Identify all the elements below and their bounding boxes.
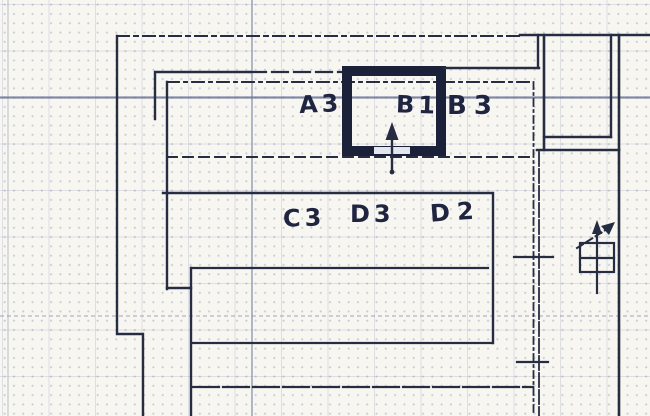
room-label-b1: B1 [396,92,440,117]
room-label-d2: D2 [429,198,481,225]
room-label-d3: D3 [350,202,395,226]
room-label-a3: A3 [298,91,342,117]
room-label-b3: B3 [447,93,499,119]
graph-paper-sheet: A3 B1 B3 C3 D3 D2 [0,0,650,416]
stair-icon [577,220,615,293]
stair-direction-arrowhead [601,222,615,235]
partition-lines [163,157,533,387]
stair-direction-arrow-shaft [577,229,607,248]
stair-run-arrowhead [592,220,602,234]
room-label-c3: C3 [283,205,326,230]
